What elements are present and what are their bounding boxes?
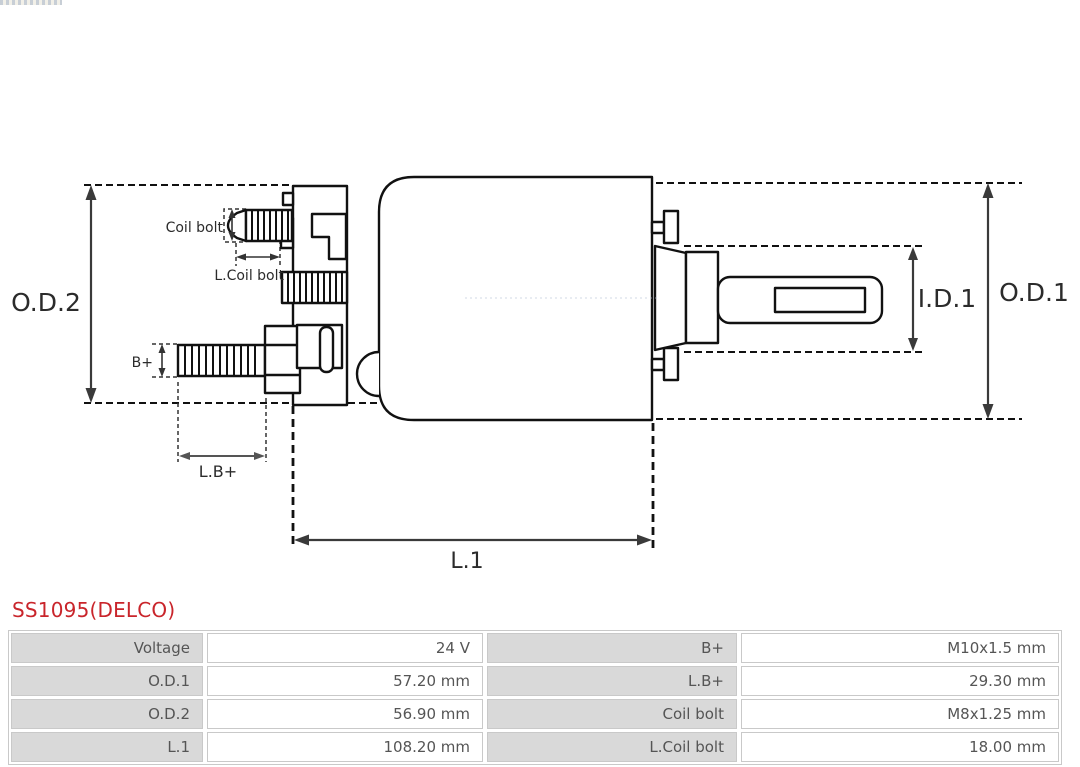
spec-row-od2: O.D.2 56.90 mm Coil bolt M8x1.25 mm [11, 699, 1059, 729]
spec-value: 24 V [207, 633, 483, 663]
l1-label: L.1 [450, 549, 483, 574]
lcoil-bolt-label: L.Coil bolt [214, 268, 284, 284]
bplus-label: B+ [132, 355, 153, 371]
spec-label: B+ [487, 633, 737, 663]
small-extension-lines [152, 209, 280, 462]
coil-bolt-label: Coil bolt [166, 220, 224, 236]
page: O.D.2 O.D.1 I.D.1 L.1 L.B+ Coil bolt L.C… [0, 0, 1080, 767]
lcoil-thread-band [282, 272, 347, 303]
spec-value: 108.20 mm [207, 732, 483, 762]
spec-value: 56.90 mm [207, 699, 483, 729]
od1-label: O.D.1 [999, 278, 1069, 307]
spec-row-voltage: Voltage 24 V B+ M10x1.5 mm [11, 633, 1059, 663]
plunger-shaft [718, 277, 882, 323]
right-bolt-top-stem [652, 222, 664, 233]
id1-label: I.D.1 [918, 284, 976, 313]
spec-label: L.B+ [487, 666, 737, 696]
right-bolt-top-head [664, 211, 678, 243]
spec-label: L.Coil bolt [487, 732, 737, 762]
spec-value: M8x1.25 mm [741, 699, 1059, 729]
specs-table: Voltage 24 V B+ M10x1.5 mm O.D.1 57.20 m… [8, 630, 1062, 765]
spec-row-od1: O.D.1 57.20 mm L.B+ 29.30 mm [11, 666, 1059, 696]
part-title: SS1095(DELCO) [12, 598, 175, 622]
right-bolt-bottom-head [664, 348, 678, 380]
right-bolt-bottom-stem [652, 359, 664, 370]
spec-label: Coil bolt [487, 699, 737, 729]
spec-value: 29.30 mm [741, 666, 1059, 696]
spec-label: L.1 [11, 732, 203, 762]
solenoid-diagram: O.D.2 O.D.1 I.D.1 L.1 L.B+ Coil bolt L.C… [0, 0, 1080, 600]
plunger-collar [655, 246, 686, 350]
spec-label: Voltage [11, 633, 203, 663]
lbplus-label: L.B+ [199, 462, 237, 481]
bplus-nut [265, 326, 300, 393]
spec-label: O.D.1 [11, 666, 203, 696]
spec-label: O.D.2 [11, 699, 203, 729]
bplus-pin [320, 327, 333, 372]
coil-bolt-threads [252, 210, 288, 241]
plate-top-flange [283, 193, 293, 205]
od2-label: O.D.2 [11, 288, 81, 317]
plunger-flange [686, 252, 718, 343]
spec-value: M10x1.5 mm [741, 633, 1059, 663]
body-notch [357, 352, 379, 396]
l1-extension-lines [293, 406, 653, 549]
spec-value: 57.20 mm [207, 666, 483, 696]
spec-value: 18.00 mm [741, 732, 1059, 762]
spec-row-l1: L.1 108.20 mm L.Coil bolt 18.00 mm [11, 732, 1059, 762]
